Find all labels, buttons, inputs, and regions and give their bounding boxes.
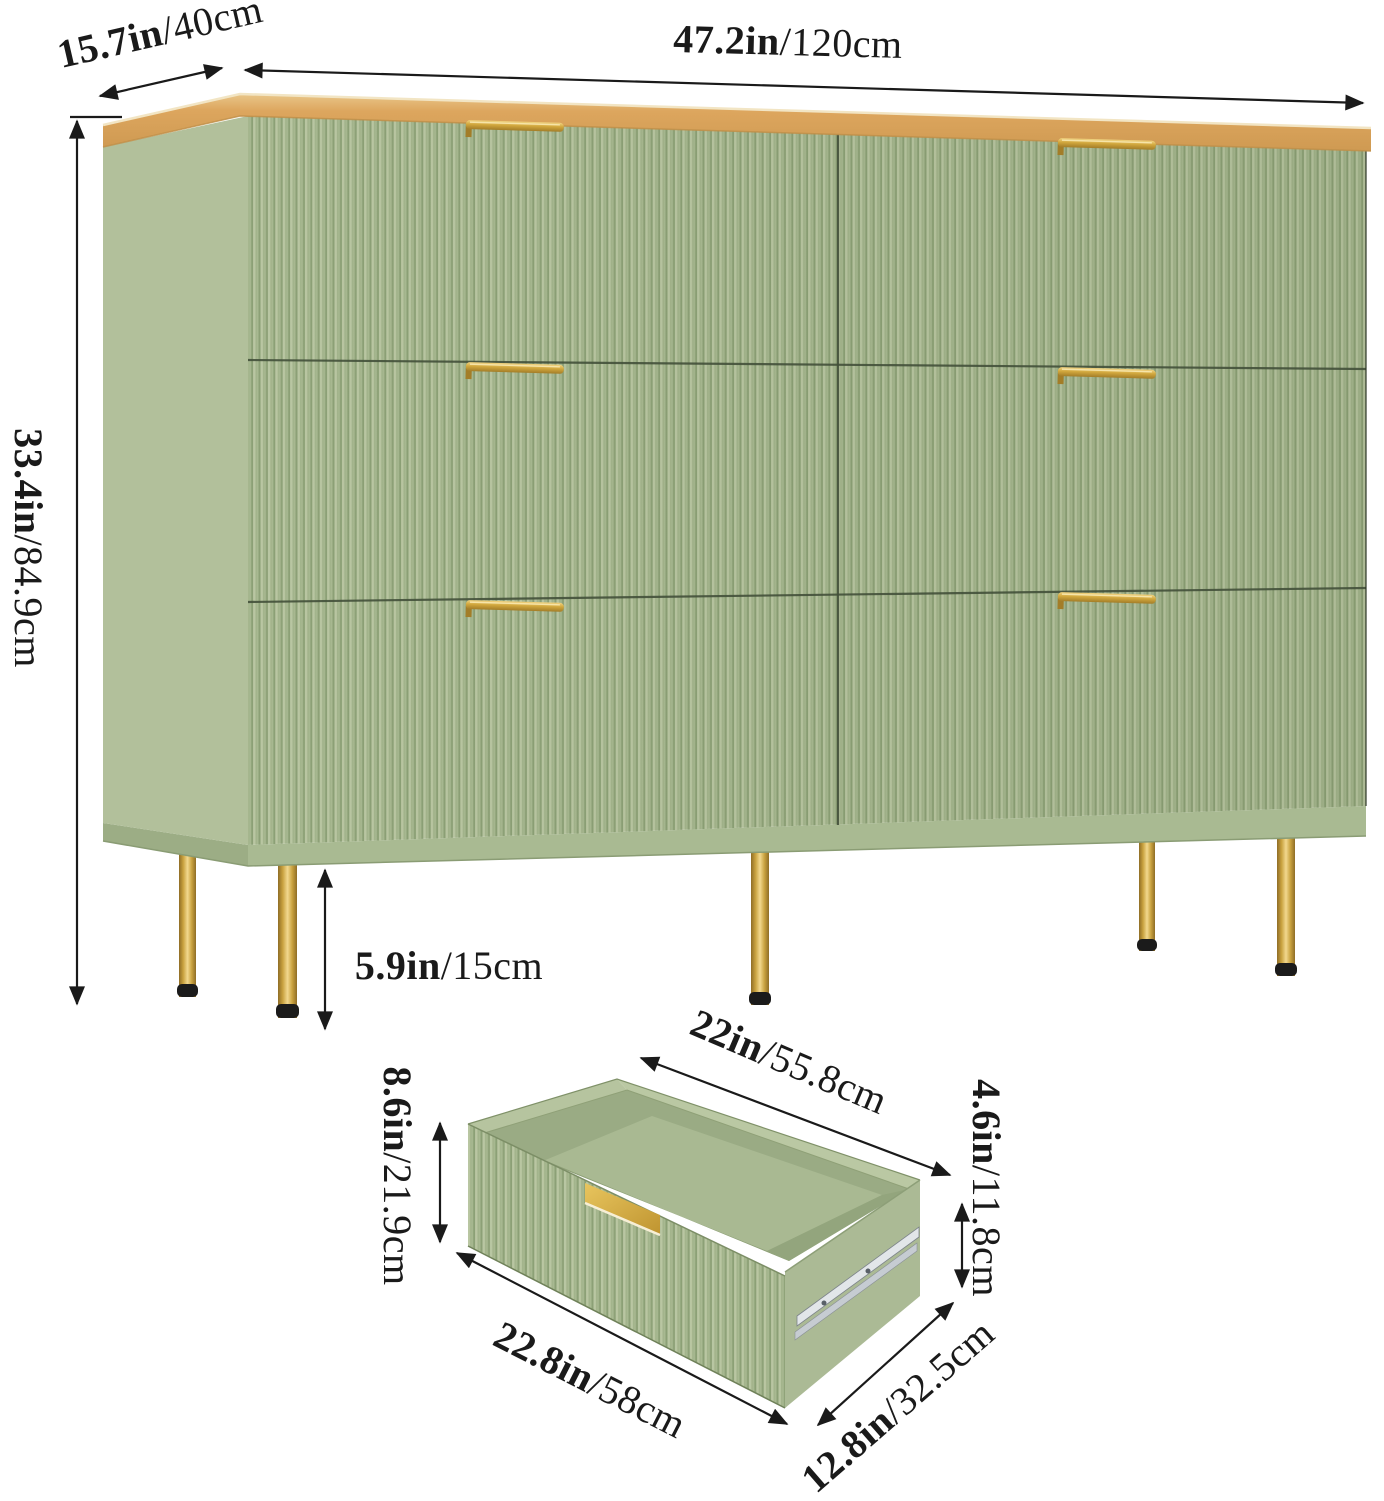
- rail-screw-2: [866, 1269, 871, 1274]
- dim-label-height: 33.4in/84.9cm: [8, 428, 48, 668]
- leg-back-left: [177, 848, 198, 997]
- dim-width-inches: 47.2in: [673, 16, 781, 64]
- leg-front-left: [276, 860, 299, 1018]
- leg-back-right: [1137, 833, 1157, 951]
- cabinet-side-panel: [103, 116, 248, 845]
- dim-drawer-front-cm: /21.9cm: [375, 1152, 420, 1285]
- leg-front-right: [1275, 831, 1297, 976]
- dim-label-drawer-front-height: 8.6in/21.9cm: [377, 1066, 417, 1285]
- dim-label-drawer-inner-height: 4.6in/11.8cm: [966, 1079, 1006, 1297]
- dim-height-cm: /84.9cm: [6, 534, 51, 667]
- dim-drawer-inner-inches: 4.6in: [964, 1079, 1009, 1165]
- dim-label-width: 47.2in/120cm: [673, 19, 903, 65]
- dim-label-leg-height: 5.9in/15cm: [355, 946, 543, 986]
- rail-screw-1: [822, 1301, 827, 1306]
- arrow-depth: [100, 68, 222, 96]
- front-face-shading: [248, 116, 1366, 845]
- dim-drawer-inner-cm: /11.8cm: [964, 1165, 1009, 1297]
- dresser-illustration: [103, 94, 1371, 1018]
- diagram-canvas: [0, 0, 1384, 1500]
- leg-front-middle: [749, 846, 771, 1005]
- dim-height-inches: 33.4in: [6, 428, 51, 534]
- product-dimension-diagram: 15.7in/40cm 47.2in/120cm 33.4in/84.9cm 5…: [0, 0, 1384, 1500]
- cabinet-front: [248, 116, 1366, 845]
- dim-leg-cm: /15cm: [441, 943, 543, 988]
- dim-width-cm: /120cm: [779, 19, 903, 67]
- dim-leg-inches: 5.9in: [355, 943, 441, 988]
- dim-drawer-front-inches: 8.6in: [375, 1066, 420, 1152]
